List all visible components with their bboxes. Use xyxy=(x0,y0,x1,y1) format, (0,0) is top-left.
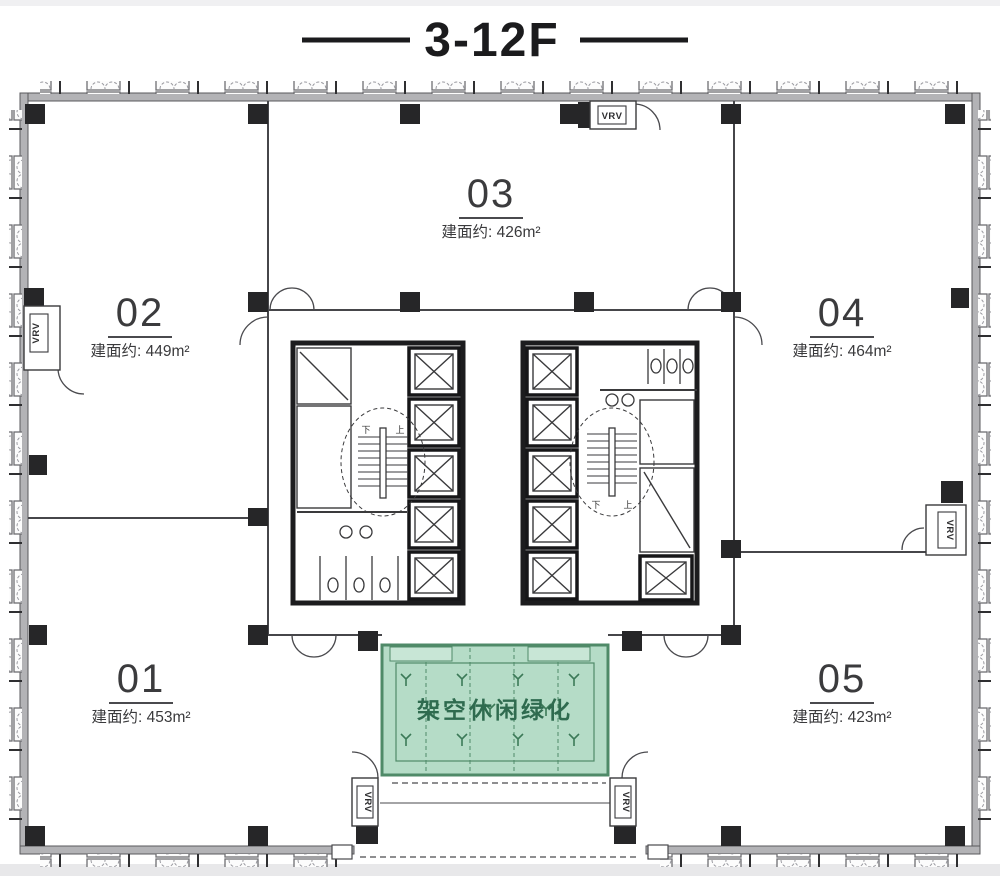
elevator-shaft xyxy=(409,399,459,446)
vrv-label: VRV xyxy=(362,792,373,813)
vrv-unit-bottom-left: VRV xyxy=(352,778,378,826)
column xyxy=(721,540,741,558)
elevator-shaft xyxy=(409,348,459,395)
column xyxy=(622,631,642,651)
column xyxy=(29,455,47,475)
column xyxy=(248,625,268,645)
stair-up-label: 上 xyxy=(395,425,404,435)
vrv-unit-left: VRV xyxy=(24,306,60,370)
unit-area: 建面约: 423m² xyxy=(792,708,891,726)
green-area: 架空休闲绿化 xyxy=(382,645,608,775)
column xyxy=(248,104,268,124)
unit-area: 建面约: 426m² xyxy=(441,223,540,241)
elevator-shaft xyxy=(527,399,577,446)
wall-bottom-left xyxy=(20,846,354,854)
elevators-left-bank xyxy=(409,348,459,599)
column xyxy=(25,826,45,846)
column xyxy=(25,104,45,124)
column xyxy=(29,625,47,645)
planter xyxy=(528,647,590,661)
vrv-label: VRV xyxy=(602,111,623,122)
vrv-label: VRV xyxy=(31,322,42,343)
elevator-shaft xyxy=(527,450,577,497)
top-edge-strip xyxy=(0,0,1000,6)
windows-bottom-left xyxy=(40,854,340,867)
elevator-shaft xyxy=(409,450,459,497)
column xyxy=(248,826,268,846)
unit-number: 02 xyxy=(116,291,165,335)
column xyxy=(574,292,594,312)
column xyxy=(400,292,420,312)
column xyxy=(721,826,741,846)
core-left: 下 上 xyxy=(293,343,463,603)
column xyxy=(614,826,636,844)
unit-number: 01 xyxy=(117,657,166,701)
windows-right xyxy=(978,110,991,835)
column xyxy=(400,104,420,124)
column xyxy=(248,292,268,312)
column xyxy=(951,288,969,308)
elevator-shaft xyxy=(640,556,692,600)
elevator-shaft xyxy=(409,501,459,548)
column xyxy=(560,104,580,124)
unit-area: 建面约: 453m² xyxy=(91,708,190,726)
elevator-shaft xyxy=(409,552,459,599)
floor-plan-svg: 3-12F xyxy=(0,0,1000,876)
vrv-unit-right: VRV xyxy=(926,505,966,555)
column xyxy=(358,631,378,651)
column xyxy=(941,481,963,503)
green-area-label: 架空休闲绿化 xyxy=(417,697,573,723)
unit-number: 04 xyxy=(818,291,867,335)
column xyxy=(721,292,741,312)
unit-area: 建面约: 449m² xyxy=(90,342,189,360)
unit-number: 05 xyxy=(818,657,867,701)
elevator-shaft xyxy=(527,348,577,395)
windows-bottom-right xyxy=(660,854,960,867)
column xyxy=(356,826,378,844)
page-title: 3-12F xyxy=(424,14,559,67)
stair-up-label: 上 xyxy=(623,500,632,510)
wall-top xyxy=(20,93,980,101)
vrv-unit-bottom-right: VRV xyxy=(610,778,636,826)
stair-down-label: 下 xyxy=(591,500,600,510)
core-right: 下 上 xyxy=(523,343,697,603)
elevator-shaft xyxy=(527,552,577,599)
unit-area: 建面约: 464m² xyxy=(792,342,891,360)
wall-end-cap xyxy=(648,845,668,859)
windows-left xyxy=(9,110,22,835)
column xyxy=(24,288,44,308)
wall-bottom-right xyxy=(646,846,980,854)
vrv-unit-top: VRV xyxy=(590,101,636,129)
elevator-shaft xyxy=(527,501,577,548)
floor-plan-page: 3-12F xyxy=(0,0,1000,876)
column xyxy=(945,104,965,124)
stair-down-label: 下 xyxy=(361,425,370,435)
column xyxy=(248,508,268,526)
unit-number: 03 xyxy=(467,172,516,216)
vrv-label: VRV xyxy=(944,520,955,541)
vrv-label: VRV xyxy=(620,792,631,813)
wall-end-cap xyxy=(332,845,352,859)
windows-top xyxy=(40,81,960,94)
column xyxy=(945,826,965,846)
column xyxy=(721,625,741,645)
column xyxy=(721,104,741,124)
column xyxy=(578,102,590,128)
planter xyxy=(390,647,452,661)
